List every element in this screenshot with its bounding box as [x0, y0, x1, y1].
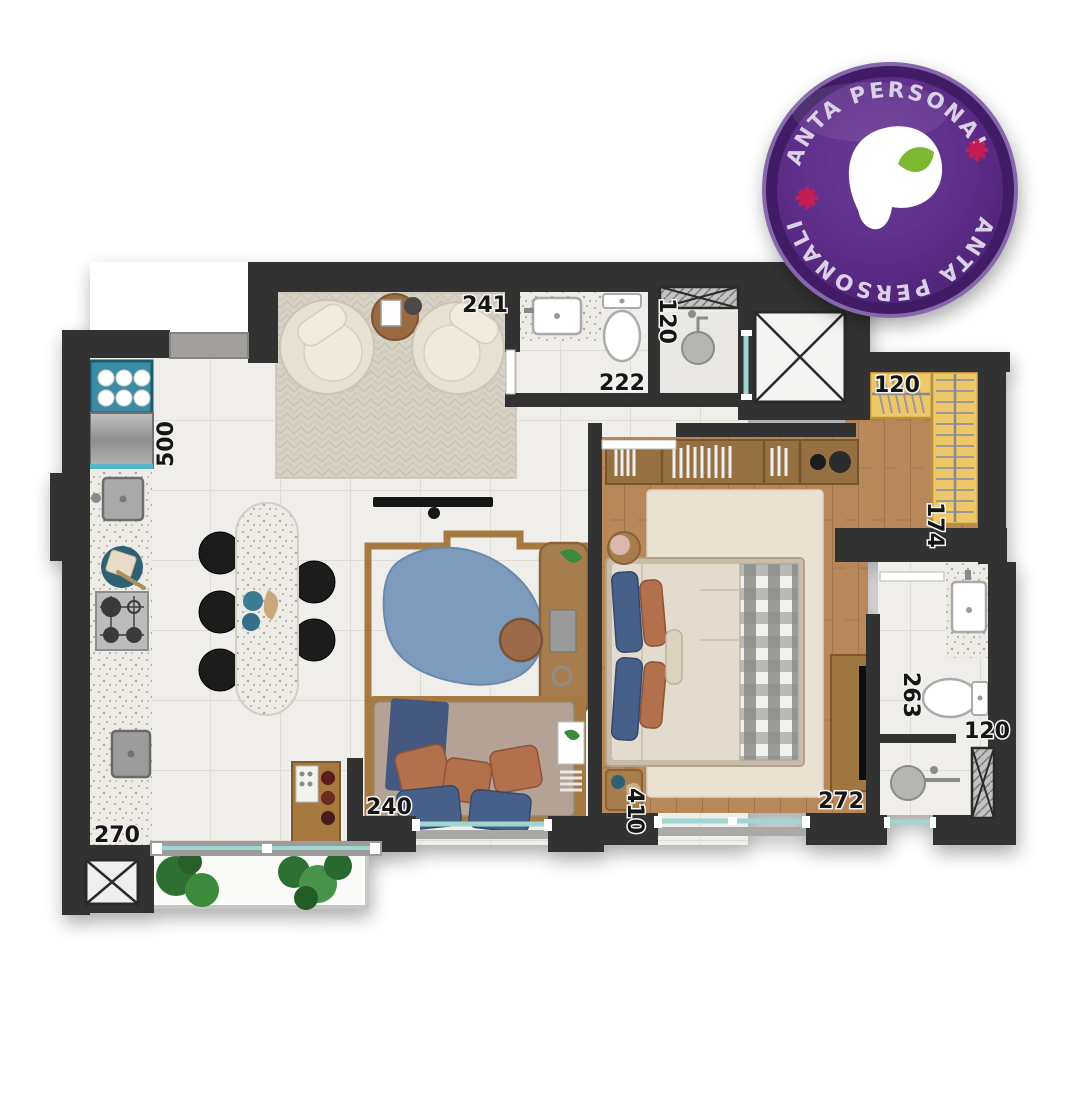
speaker: [829, 451, 851, 473]
side-shelf: [558, 722, 584, 764]
elevator-shaft: [755, 312, 845, 402]
fridge: [90, 413, 153, 468]
fridge-accent: [90, 464, 153, 469]
bath1-sink-drain: [554, 313, 560, 319]
wall-bedroom-top-l: [588, 423, 602, 437]
bath2-door-leaf: [880, 572, 944, 581]
sink-faucet: [91, 493, 101, 503]
bath2-faucet: [965, 570, 971, 580]
wall-left-bump: [50, 473, 64, 561]
bath1-faucet: [524, 308, 534, 313]
dim-office-depth: 410: [622, 788, 647, 834]
laundry-drain: [128, 751, 135, 758]
wall-bedroom-bottom-r: [806, 813, 876, 845]
table-plate-1: [243, 591, 263, 611]
wall-bedroom-left: [588, 423, 602, 813]
plaid-blanket: [740, 564, 798, 760]
table-tray: [381, 300, 401, 326]
outside-mask: [90, 262, 248, 332]
dim-office-width: 240: [366, 795, 412, 820]
sink-drain: [120, 496, 127, 503]
table-plate-2: [242, 613, 260, 631]
table-lamp: [404, 297, 422, 315]
nightstand-lamp: [610, 535, 630, 555]
tv-stand: [428, 507, 440, 519]
bar-cabinet: [292, 762, 340, 846]
dim-bath1-width: 120: [654, 298, 679, 344]
armchair-left: [280, 300, 374, 394]
entry-threshold: [170, 333, 248, 358]
bath1-door-leaf: [506, 350, 515, 394]
dim-service: 270: [94, 823, 140, 848]
bath2-partition: [878, 734, 956, 743]
flower-icon: [968, 141, 986, 159]
bath1-toilet: [603, 294, 641, 361]
planta-personalize-badge: PLANTA PERSONALIZE PLANTA PERSONALIZE: [762, 62, 1018, 318]
bedroom-door-leaf: [602, 440, 676, 449]
dim-closet-width: 120: [874, 373, 920, 398]
dim-closet-depth: 174: [922, 502, 947, 548]
duct-shaft-bath2: [972, 748, 994, 818]
flower-icon: [798, 189, 816, 207]
wall-office-bottom-r: [548, 816, 604, 852]
tv-bedroom: [859, 666, 866, 780]
service-shaft: [86, 860, 138, 904]
tv-living: [373, 497, 493, 507]
floorplan-page: { "badge": { "arc_text_top": "PLANTA PER…: [0, 0, 1080, 1120]
bath2-window: [884, 817, 936, 828]
record-player: [810, 454, 826, 470]
floorplan-canvas: 241 120 222 500 270 240 410 272 263 120 …: [0, 0, 1080, 1120]
dim-kitchen: 500: [154, 421, 179, 467]
wall-bedroom-top-r: [676, 423, 856, 437]
nightstand-vase: [611, 775, 625, 789]
dim-bath2-length: 263: [898, 672, 923, 718]
wall-left-outer: [62, 330, 90, 915]
dim-living: 241: [462, 293, 508, 318]
floor-plan: 241 120 222 500 270 240 410 272 263 120 …: [50, 262, 1016, 915]
dim-bath1-length: 222: [599, 371, 645, 396]
bath2-toilet: [923, 679, 988, 717]
balcony-sliding-door: [150, 841, 382, 856]
bed: [606, 558, 804, 766]
dim-bedroom: 272: [818, 789, 864, 814]
office-chair: [500, 619, 542, 661]
dim-bath2-width: 120: [964, 719, 1010, 744]
wall-closet-bottom: [835, 528, 1007, 562]
wall-bath2-bottom-r: [933, 815, 1016, 845]
bath2-sink-drain: [966, 607, 972, 613]
desk-laptop: [550, 610, 576, 652]
wall-bedroom-bath2: [866, 614, 880, 815]
